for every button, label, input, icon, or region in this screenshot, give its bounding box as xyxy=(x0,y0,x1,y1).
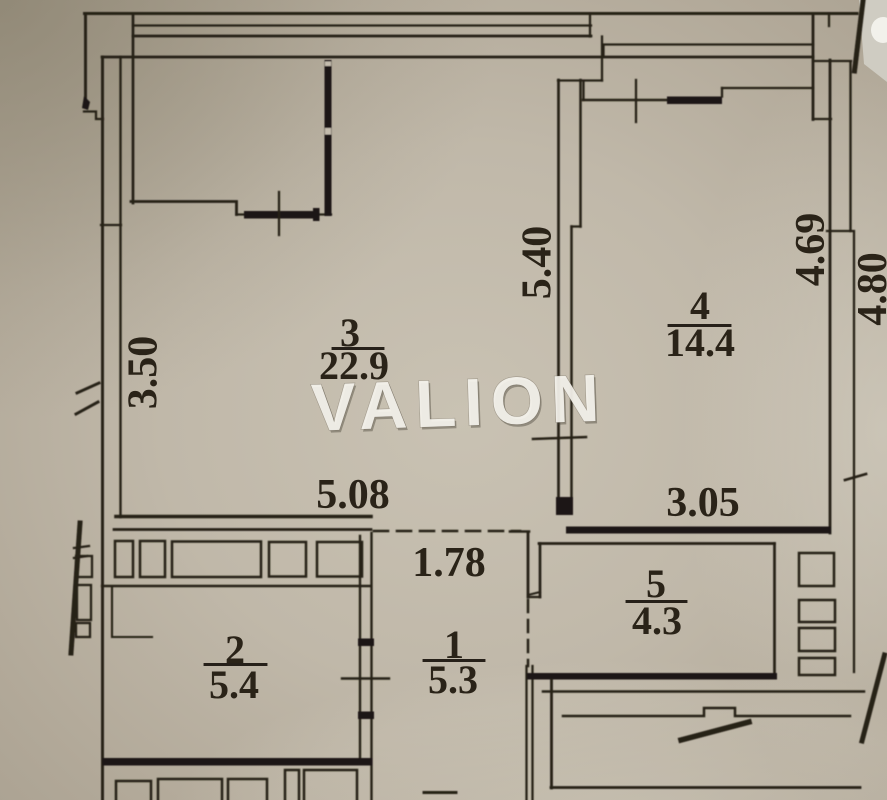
svg-text:5.08: 5.08 xyxy=(316,472,390,518)
svg-text:VALION: VALION xyxy=(310,361,609,446)
svg-text:5.3: 5.3 xyxy=(428,657,478,702)
svg-text:3.05: 3.05 xyxy=(666,480,740,526)
svg-text:4.80: 4.80 xyxy=(850,252,887,326)
svg-text:5.4: 5.4 xyxy=(209,662,259,707)
svg-text:5.40: 5.40 xyxy=(515,226,561,300)
svg-text:1.78: 1.78 xyxy=(412,540,486,586)
svg-text:14.4: 14.4 xyxy=(665,320,735,365)
svg-text:4.3: 4.3 xyxy=(632,598,682,643)
svg-text:4.69: 4.69 xyxy=(788,213,834,287)
svg-text:3.50: 3.50 xyxy=(121,336,167,410)
